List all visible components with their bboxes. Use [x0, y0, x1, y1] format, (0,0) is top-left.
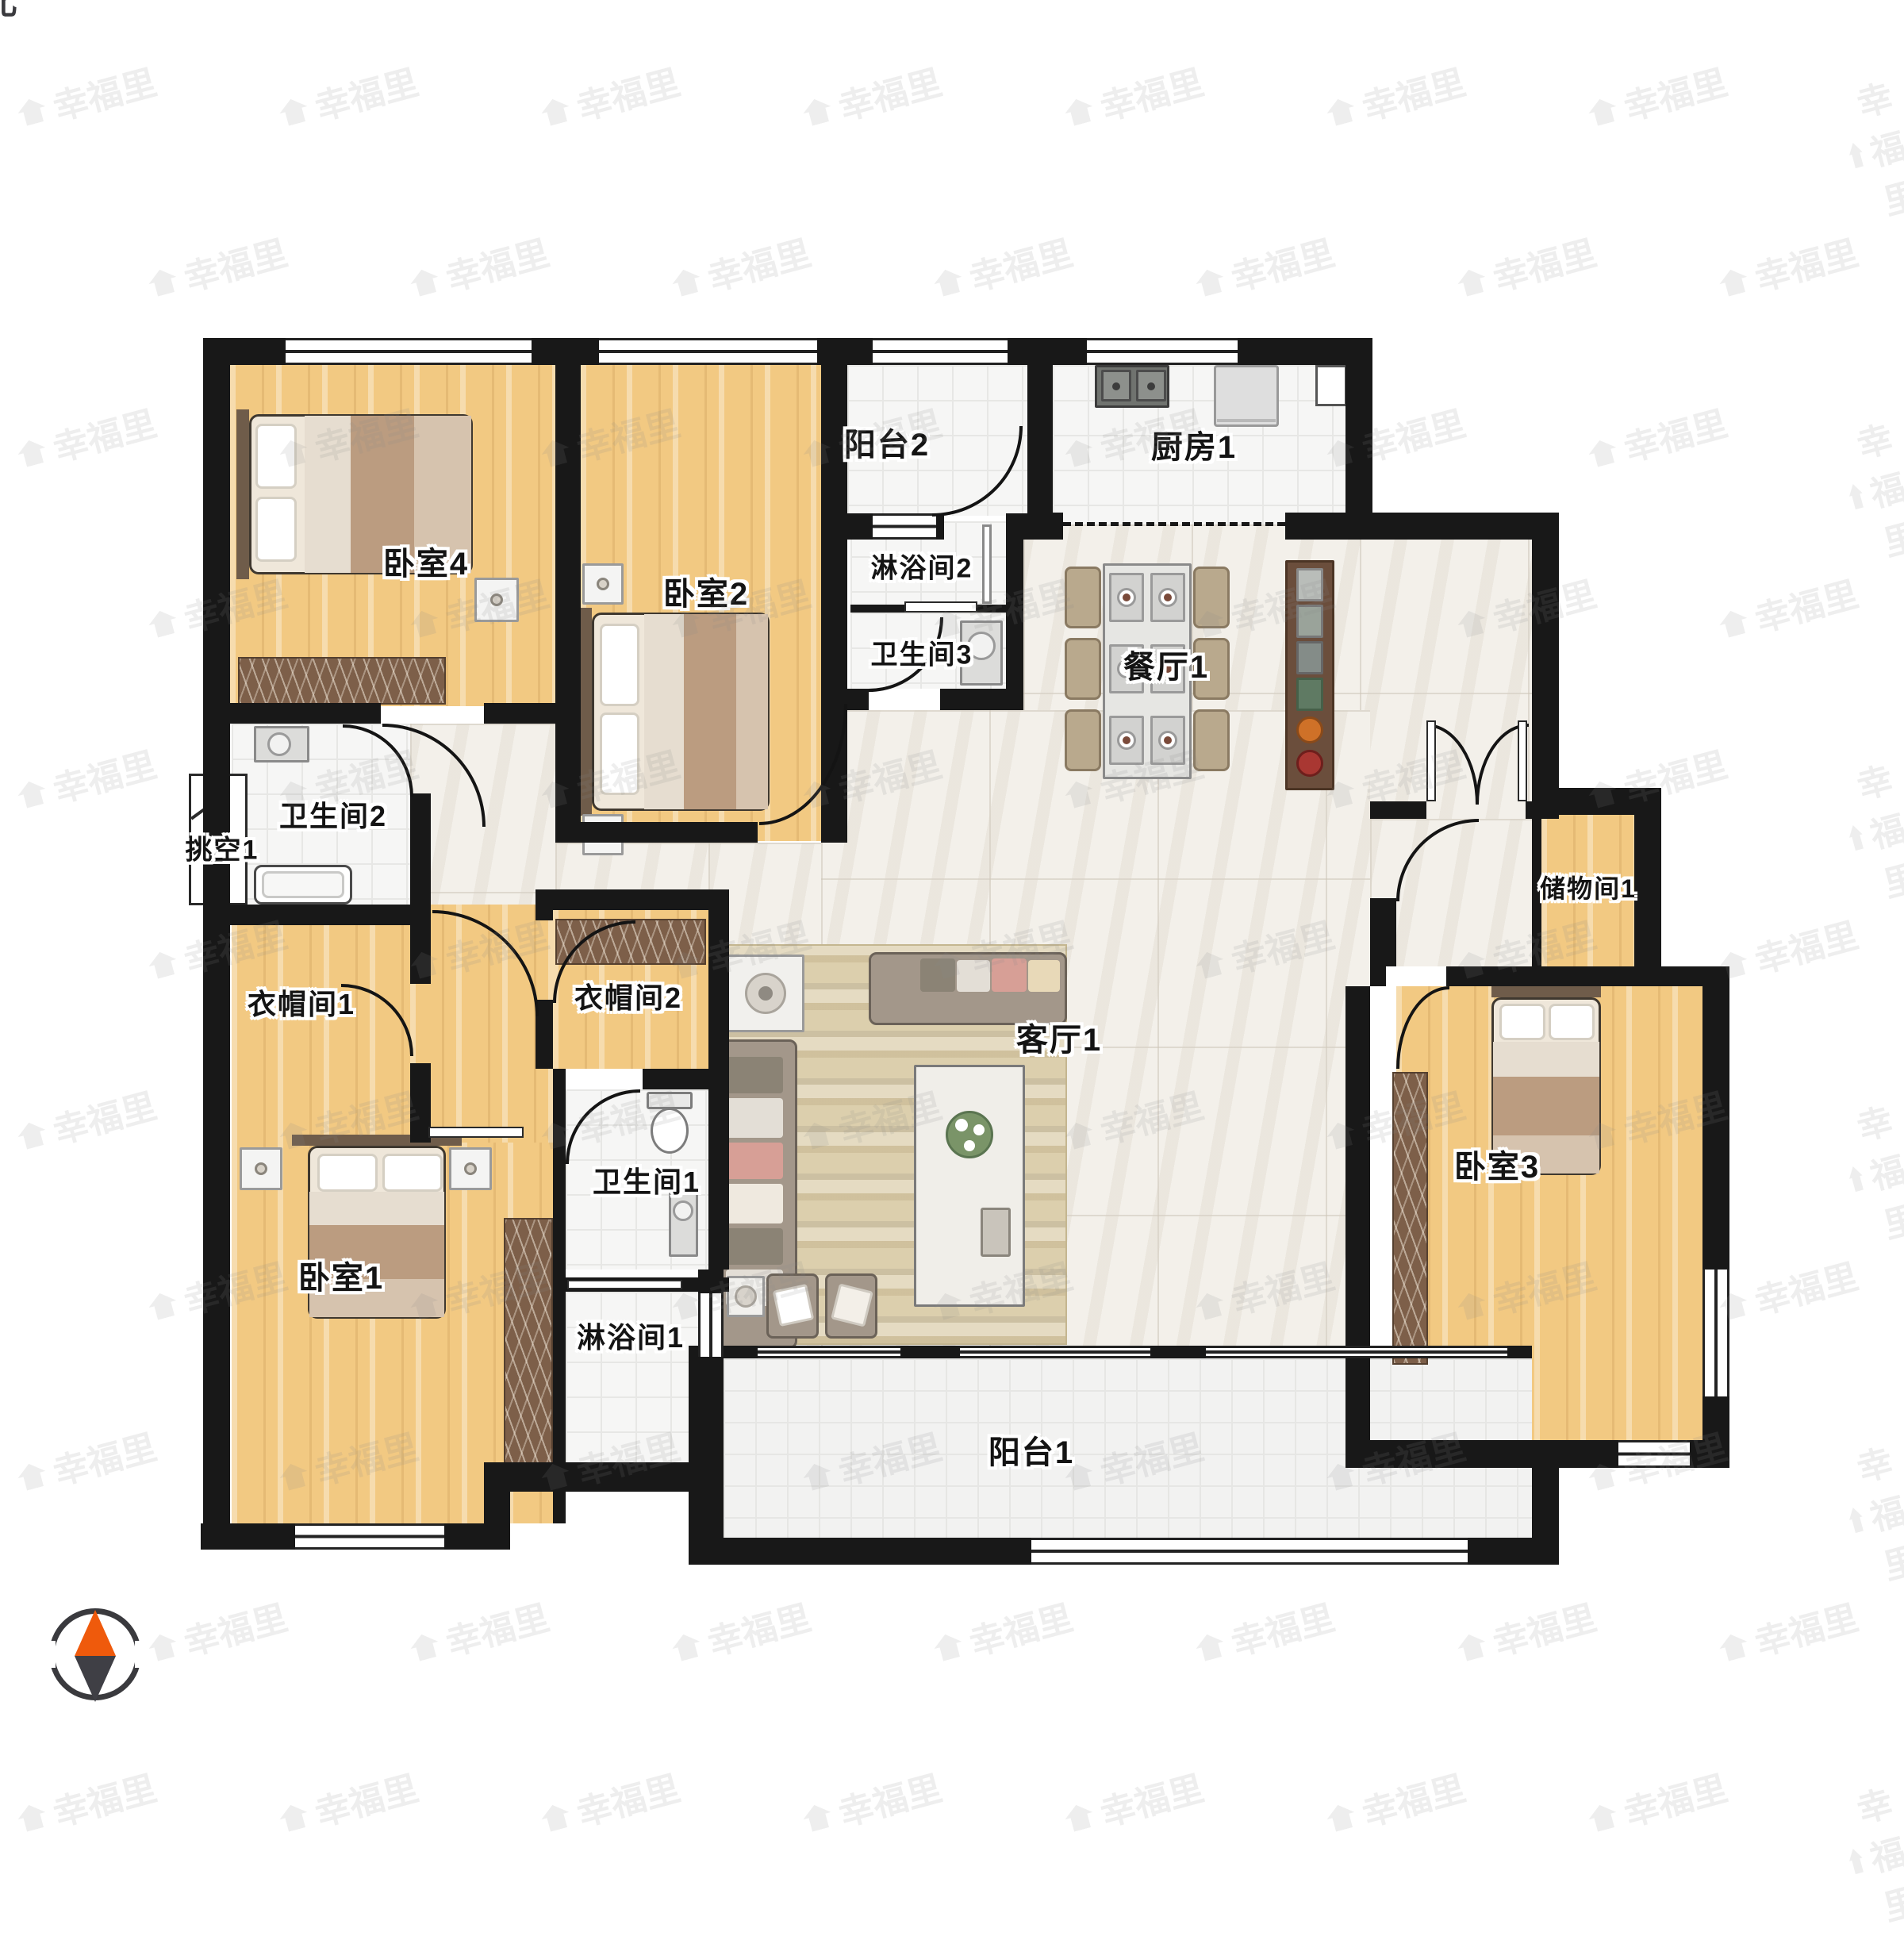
watermark-text: 幸福里 [1749, 1248, 1863, 1324]
house-icon [800, 95, 835, 127]
watermark-text: 幸福里 [963, 1589, 1077, 1665]
room-label-shower1: 淋浴间1 [577, 1315, 685, 1356]
watermark-text: 幸福里 [570, 1760, 685, 1836]
watermark: 幸福里 [143, 225, 292, 310]
wall [1345, 986, 1370, 1468]
furniture-circle [1123, 593, 1130, 601]
watermark-text: 幸福里 [1356, 395, 1470, 471]
furniture-circle [490, 593, 503, 606]
furniture-rect [581, 608, 592, 816]
furniture-rect [1493, 1042, 1599, 1077]
wall [1370, 801, 1426, 819]
watermark: 幸福里 [1190, 225, 1339, 310]
house-icon [1846, 482, 1866, 510]
furniture-circle [1164, 593, 1172, 601]
wall [410, 905, 431, 984]
watermark: 幸福里 [1583, 54, 1732, 140]
window [1618, 1440, 1690, 1468]
furniture-circle [673, 1200, 693, 1221]
furniture-rect [1315, 365, 1347, 406]
furniture-circle [1123, 736, 1130, 744]
watermark: 幸福里 [1583, 1760, 1732, 1846]
window [758, 1346, 900, 1358]
watermark-text: 幸福里 [47, 54, 161, 130]
watermark: 幸福里 [1321, 54, 1470, 140]
watermark: 幸福里 [1830, 1430, 1904, 1596]
watermark: 幸福里 [1321, 1760, 1470, 1846]
house-icon [670, 266, 704, 298]
house-icon [146, 948, 180, 980]
furniture-circle [1296, 750, 1323, 777]
wardrobe-hatch [238, 657, 446, 705]
house-icon [1717, 1631, 1751, 1662]
watermark: 幸福里 [1190, 1589, 1339, 1675]
furniture-rect [1491, 986, 1601, 997]
furniture-rect [1193, 709, 1230, 771]
furniture-rect [981, 1208, 1011, 1257]
house-icon [1062, 1801, 1096, 1833]
watermark: 幸福里 [1583, 395, 1732, 481]
furniture-rect [920, 958, 955, 992]
watermark: 幸福里 [405, 1589, 554, 1675]
furniture-rect [726, 1057, 783, 1093]
house-icon [800, 1801, 835, 1833]
watermark: 幸福里 [797, 1760, 946, 1846]
wall [1053, 513, 1063, 540]
watermark: 幸福里 [274, 1760, 423, 1846]
watermark-text: 幸福里 [1851, 1430, 1904, 1590]
wall [1634, 788, 1661, 986]
watermark-text: 幸福里 [1851, 1089, 1904, 1249]
house-icon [15, 1801, 49, 1833]
watermark-text: 幸福里 [1851, 747, 1904, 908]
watermark: 幸福里 [1830, 747, 1904, 913]
window [698, 1293, 724, 1357]
house-icon [15, 778, 49, 809]
house-icon [1846, 1847, 1866, 1875]
watermark-text: 幸福里 [1749, 566, 1863, 642]
wall [1370, 898, 1396, 966]
floor-plan: 卧室4卧室2阳台2厨房1淋浴间2卫生间3餐厅1卫生间2挑空1衣帽间1衣帽间2储物… [0, 0, 1904, 1904]
wall [230, 905, 431, 925]
room-label-storage1: 储物间1 [1540, 869, 1637, 905]
house-icon [1717, 607, 1751, 639]
watermark-text: 幸福里 [1851, 1771, 1904, 1931]
wall [689, 1346, 724, 1565]
wall [936, 513, 944, 540]
furniture-rect [957, 960, 990, 992]
window [1702, 1270, 1729, 1396]
furniture-rect [726, 1184, 783, 1223]
watermark-text: 幸福里 [1749, 225, 1863, 301]
watermark-text: 幸福里 [1094, 54, 1208, 130]
house-icon [15, 436, 49, 468]
sliding-door [1426, 720, 1436, 801]
house-icon [277, 95, 311, 127]
furniture-circle [964, 1140, 975, 1151]
furniture-rect [1493, 1077, 1599, 1135]
compass-ring-gap-left [41, 1641, 56, 1668]
watermark: 幸福里 [1059, 54, 1208, 140]
watermark: 幸福里 [12, 736, 161, 822]
watermark: 幸福里 [928, 225, 1077, 310]
window [873, 338, 1008, 365]
watermark-text: 幸福里 [309, 54, 423, 130]
wall [1446, 966, 1729, 986]
watermark-text: 幸福里 [1225, 1589, 1339, 1665]
furniture-rect [262, 871, 344, 898]
watermark-text: 幸福里 [701, 225, 816, 301]
watermark-text: 幸福里 [1356, 1760, 1470, 1836]
house-icon [277, 1801, 311, 1833]
furniture-circle [955, 1119, 968, 1131]
furniture-rect [647, 1092, 693, 1109]
watermark-text: 幸福里 [963, 225, 1077, 301]
watermark: 幸福里 [1714, 1589, 1863, 1675]
watermark: 幸福里 [1452, 1589, 1601, 1675]
furniture-circle [1112, 382, 1120, 390]
watermark: 幸福里 [405, 225, 554, 310]
furniture-rect [726, 1098, 783, 1138]
watermark: 幸福里 [797, 54, 946, 140]
watermark-text: 幸福里 [47, 1077, 161, 1154]
wall [1285, 513, 1559, 540]
watermark-text: 幸福里 [570, 54, 685, 130]
furniture-rect [1499, 1004, 1545, 1040]
watermark: 幸福里 [1830, 1771, 1904, 1936]
furniture-rect [600, 713, 639, 795]
sliding-door [567, 1280, 682, 1289]
compass-ring-gap-right [135, 1641, 149, 1668]
window [873, 513, 936, 540]
house-icon [1455, 266, 1489, 298]
window [286, 338, 532, 365]
wall [535, 889, 726, 910]
furniture-rect [684, 614, 736, 809]
watermark: 幸福里 [1059, 1760, 1208, 1846]
house-icon [931, 1631, 965, 1662]
window [295, 1523, 444, 1550]
window [1206, 1346, 1507, 1358]
wall [1532, 1468, 1559, 1565]
watermark: 幸福里 [1714, 566, 1863, 651]
watermark-text: 幸福里 [440, 225, 554, 301]
watermark: 幸福里 [12, 1760, 161, 1846]
house-icon [15, 1119, 49, 1150]
watermark: 幸福里 [12, 395, 161, 481]
room-label-kitchen1: 厨房1 [1151, 421, 1237, 467]
furniture-rect [773, 1284, 815, 1327]
house-icon [931, 266, 965, 298]
furniture-circle [464, 1162, 477, 1175]
furniture-rect [1065, 567, 1101, 628]
watermark-text: 幸福里 [1618, 54, 1732, 130]
room-label-bedroom4: 卧室4 [383, 538, 469, 584]
furniture-rect [1065, 638, 1101, 700]
wall [1006, 513, 1023, 710]
watermark: 幸福里 [1830, 406, 1904, 572]
furniture-rect [914, 1065, 1025, 1307]
watermark-text: 幸福里 [47, 1419, 161, 1495]
furniture-rect [309, 1192, 444, 1225]
window [1087, 338, 1238, 365]
watermark: 幸福里 [1830, 1089, 1904, 1254]
house-icon [146, 1289, 180, 1321]
furniture-circle [758, 986, 773, 1001]
furniture-rect [255, 497, 297, 562]
house-icon [408, 1631, 442, 1662]
house-icon [146, 607, 180, 639]
house-icon [1586, 436, 1620, 468]
house-icon [1586, 95, 1620, 127]
watermark-text: 幸福里 [47, 1760, 161, 1836]
wall [555, 338, 581, 822]
dashed-boundary-line [1063, 522, 1285, 526]
watermark-text: 幸福里 [178, 225, 292, 301]
room-label-balcony2: 阳台2 [844, 419, 930, 465]
watermark: 幸福里 [1714, 225, 1863, 310]
house-icon [15, 1460, 49, 1492]
watermark: 幸福里 [143, 1589, 292, 1675]
furniture-rect [1296, 678, 1323, 711]
watermark-text: 幸福里 [1749, 907, 1863, 983]
furniture-circle [1164, 736, 1172, 744]
watermark-text: 幸福里 [309, 1760, 423, 1836]
house-icon [1193, 266, 1227, 298]
wall [553, 1069, 566, 1089]
furniture-circle [1296, 716, 1323, 743]
watermark-text: 幸福里 [1618, 1760, 1732, 1836]
furniture-rect [382, 1154, 443, 1192]
house-icon [1324, 1801, 1358, 1833]
house-icon [1846, 1506, 1866, 1534]
furniture-rect [305, 416, 351, 573]
wall [643, 1069, 729, 1089]
room-label-cloak2: 衣帽间2 [574, 975, 682, 1016]
house-icon [539, 95, 573, 127]
compass-needle-north [75, 1610, 116, 1656]
furniture-rect [644, 614, 684, 809]
house-icon [1846, 141, 1866, 169]
watermark-text: 幸福里 [701, 1589, 816, 1665]
room-label-bath3: 卫生间3 [871, 633, 973, 672]
furniture-rect [255, 424, 297, 489]
watermark: 幸福里 [1714, 1248, 1863, 1334]
furniture-rect [1028, 960, 1060, 992]
room-label-shower2: 淋浴间2 [871, 547, 973, 586]
sliding-door [904, 601, 977, 613]
house-icon [408, 266, 442, 298]
watermark-text: 幸福里 [1487, 1589, 1601, 1665]
furniture-rect [1214, 365, 1279, 427]
watermark: 幸福里 [12, 1077, 161, 1163]
furniture-rect [600, 624, 639, 706]
watermark-text: 幸福里 [1225, 225, 1339, 301]
furniture-circle [973, 1124, 985, 1135]
watermark-text: 幸福里 [1356, 54, 1470, 130]
watermark-text: 幸福里 [832, 54, 946, 130]
room-label-dining1: 餐厅1 [1123, 641, 1209, 687]
sliding-door [428, 1127, 524, 1138]
furniture-rect [1193, 567, 1230, 628]
house-icon [1846, 824, 1866, 851]
furniture-rect [1065, 709, 1101, 771]
watermark-text: 幸福里 [832, 1760, 946, 1836]
furniture-rect [317, 1154, 378, 1192]
furniture-circle [1147, 382, 1155, 390]
watermark-text: 幸福里 [440, 1589, 554, 1665]
house-icon [539, 1801, 573, 1833]
furniture-circle [735, 1285, 757, 1308]
room-label-bedroom3: 卧室3 [1454, 1141, 1540, 1187]
watermark-text: 幸福里 [1094, 1760, 1208, 1836]
furniture-rect [726, 1143, 783, 1179]
house-icon [1846, 1165, 1866, 1193]
room-label-bath2: 卫生间2 [279, 793, 387, 835]
room-label-living1: 客厅1 [1016, 1014, 1102, 1060]
window [599, 338, 817, 365]
watermark: 幸福里 [12, 54, 161, 140]
watermark: 幸福里 [666, 225, 816, 310]
wall [821, 513, 873, 540]
sliding-door [1518, 720, 1527, 801]
watermark: 幸福里 [1830, 65, 1904, 231]
watermark: 幸福里 [535, 54, 685, 140]
room-label-cloak1: 衣帽间1 [248, 981, 355, 1023]
house-icon [146, 266, 180, 298]
wall [203, 338, 230, 1523]
watermark: 幸福里 [928, 1589, 1077, 1675]
house-icon [1586, 1801, 1620, 1833]
room-label-void1: 挑空1 [186, 828, 259, 867]
wall [230, 703, 381, 724]
watermark-text: 幸福里 [1749, 1589, 1863, 1665]
wall [555, 822, 758, 843]
house-icon [1193, 1631, 1227, 1662]
watermark-text: 幸福里 [1851, 406, 1904, 567]
furniture-rect [1296, 568, 1323, 601]
furniture-rect [1549, 1004, 1595, 1040]
house-icon [1062, 95, 1096, 127]
furniture-circle [597, 578, 609, 590]
window [1031, 1538, 1468, 1565]
house-icon [1455, 1631, 1489, 1662]
watermark-text: 幸福里 [1618, 395, 1732, 471]
furniture-circle [255, 1162, 267, 1175]
watermark: 幸福里 [666, 1589, 816, 1675]
room-label-bedroom1: 卧室1 [298, 1252, 384, 1298]
watermark-text: 幸福里 [1851, 65, 1904, 225]
watermark: 幸福里 [274, 54, 423, 140]
wall [1345, 338, 1372, 540]
house-icon [670, 1631, 704, 1662]
house-icon [1717, 266, 1751, 298]
watermark-text: 幸福里 [47, 395, 161, 471]
watermark-text: 幸福里 [178, 1589, 292, 1665]
wall [1370, 966, 1386, 986]
watermark-text: 幸福里 [47, 736, 161, 812]
wall [535, 910, 553, 920]
furniture-rect [236, 409, 249, 579]
wall [1027, 338, 1053, 513]
room-label-bedroom2: 卧室2 [663, 568, 749, 614]
wall [553, 1089, 566, 1523]
toilet-bowl [651, 1108, 689, 1154]
north-label: 北 [0, 0, 17, 25]
furniture-rect [1296, 605, 1323, 638]
watermark: 幸福里 [12, 1419, 161, 1504]
furniture-rect [982, 524, 992, 604]
wardrobe-hatch [504, 1218, 553, 1481]
watermark: 幸福里 [1714, 907, 1863, 993]
wall [510, 1462, 698, 1492]
house-icon [15, 95, 49, 127]
watermark-text: 幸福里 [1487, 225, 1601, 301]
watermark: 幸福里 [535, 1760, 685, 1846]
house-icon [1324, 95, 1358, 127]
furniture-circle [267, 732, 291, 756]
window [960, 1346, 1150, 1358]
room-label-bath1: 卫生间1 [593, 1159, 701, 1200]
furniture-circle [946, 1111, 993, 1158]
wardrobe-hatch [1392, 1072, 1428, 1365]
compass-needle-south [75, 1656, 116, 1702]
furniture-rect [992, 958, 1027, 992]
furniture-rect [726, 1228, 783, 1265]
wall [1532, 540, 1559, 819]
room-label-balcony1: 阳台1 [988, 1427, 1074, 1473]
wall [1019, 513, 1053, 540]
watermark: 幸福里 [1452, 225, 1601, 310]
house-icon [146, 1631, 180, 1662]
furniture-rect [1296, 641, 1323, 674]
wall [484, 703, 555, 724]
